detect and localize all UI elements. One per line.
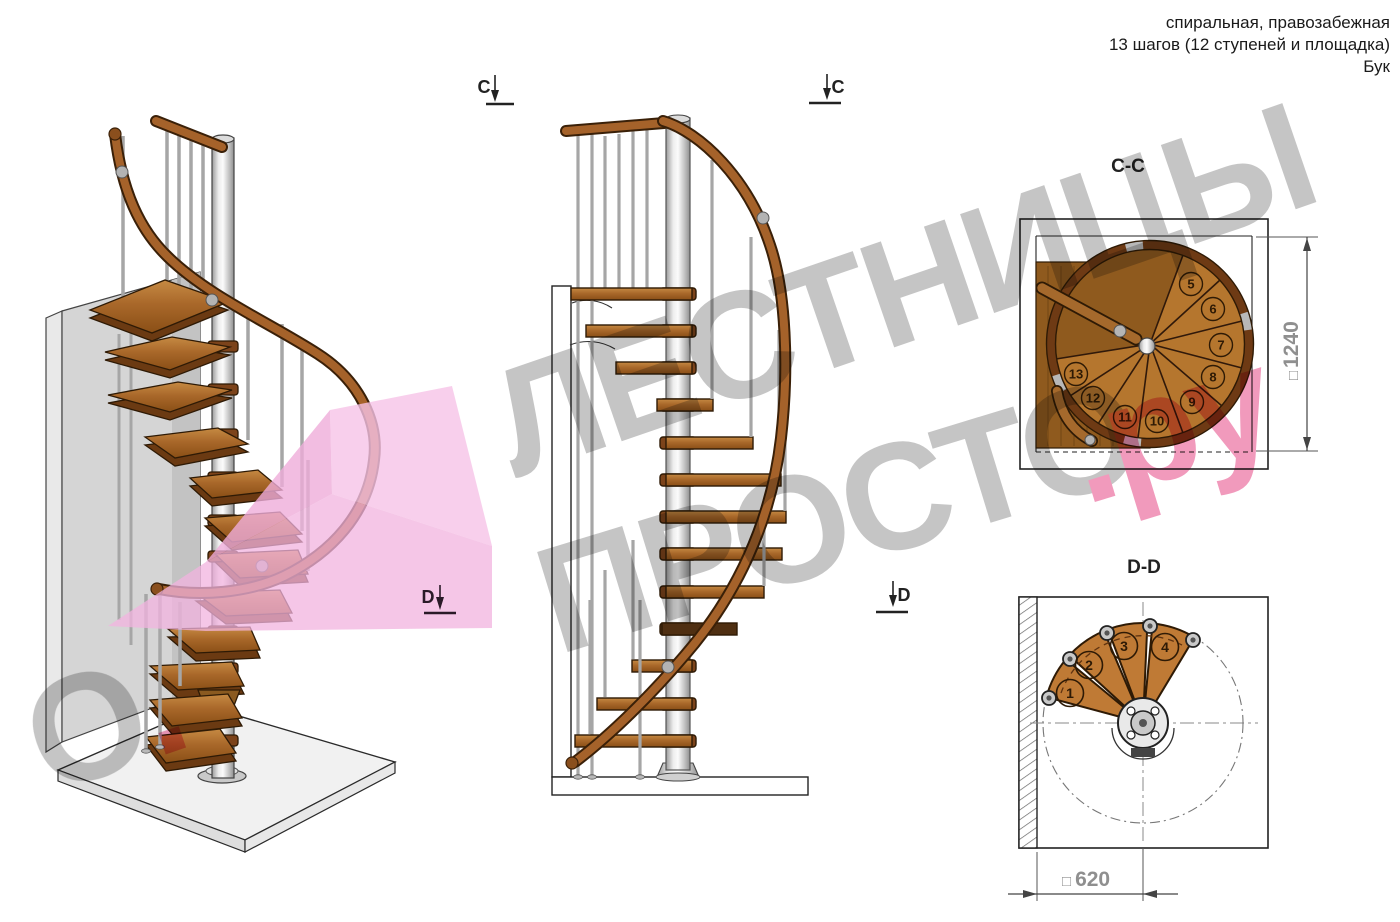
- screw-icon: [1186, 633, 1200, 647]
- title-line: 13 шагов (12 ступеней и площадка): [1109, 34, 1390, 56]
- section-marker-label: C: [832, 77, 845, 97]
- section-marker-c-right: C: [809, 74, 845, 103]
- dimension-620: □620: [1008, 848, 1178, 901]
- svg-text:6: 6: [1209, 302, 1216, 317]
- svg-text:1: 1: [1066, 685, 1074, 701]
- dimension-text: □620: [1062, 868, 1110, 891]
- dimension-arrow-icon: [1303, 437, 1311, 450]
- section-marker-c-left: C: [478, 75, 515, 104]
- svg-text:4: 4: [1161, 639, 1169, 655]
- svg-text:2: 2: [1085, 657, 1093, 673]
- plan-title: D-D: [1127, 557, 1161, 578]
- svg-text:3: 3: [1120, 638, 1128, 654]
- section-marker-label: C: [478, 77, 491, 97]
- baluster-foot: [588, 775, 597, 779]
- staircase-drawing: C C D D C-C: [0, 0, 1400, 922]
- screw-icon: [1042, 691, 1056, 705]
- hub-bracket: [1131, 748, 1155, 757]
- dimension-arrow-icon: [1023, 890, 1037, 898]
- section-marker-label: D: [422, 587, 435, 607]
- dimension-arrow-icon: [1143, 890, 1157, 898]
- title-line: спиральная, правозабежная: [1109, 12, 1390, 34]
- dimension-text: □1240: [1280, 321, 1303, 380]
- section-marker-label: D: [898, 585, 911, 605]
- screw-icon: [1143, 619, 1157, 633]
- drawing-sheet: C C D D C-C: [0, 0, 1400, 922]
- baluster-foot: [636, 775, 645, 779]
- screw-icon: [1100, 626, 1114, 640]
- title-block: спиральная, правозабежная 13 шагов (12 с…: [1109, 12, 1390, 78]
- title-line: Бук: [1109, 56, 1390, 78]
- plan-view-dd: D-D 1 2 3 4: [1008, 557, 1268, 901]
- baluster-foot: [574, 775, 583, 779]
